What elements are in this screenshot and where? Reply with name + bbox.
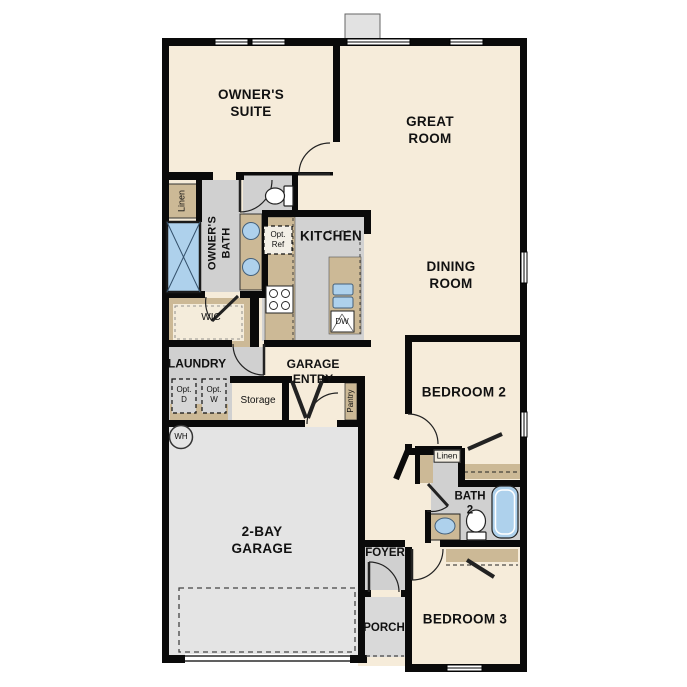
owners-bath-label: OWNER'SBATH [206, 216, 234, 270]
linen-hall-label: Linen [434, 450, 461, 463]
garage-entry-label: GARAGEENTRY [287, 357, 340, 387]
garage-door-opening [185, 654, 350, 664]
opt-ref-label: Opt.Ref [270, 230, 285, 250]
chimney [345, 14, 380, 41]
bedroom2-label: BEDROOM 2 [422, 385, 506, 402]
linen-owners-label: Linen [176, 190, 187, 212]
window [447, 665, 482, 671]
bath2-sink [435, 518, 455, 534]
bedroom3-label: BEDROOM 3 [423, 612, 507, 629]
window [215, 39, 248, 45]
dishwasher-label: DW [335, 317, 348, 327]
vanity-sink-1 [243, 223, 260, 240]
water-heater-label: WH [174, 432, 187, 442]
window [450, 39, 483, 45]
bath2-label: BATH2 [454, 490, 485, 519]
window [347, 39, 410, 45]
window [521, 412, 527, 437]
garage-label: 2-BAYGARAGE [231, 524, 292, 558]
kitchen-label: KITCHEN [300, 229, 362, 246]
porch-label: PORCH [363, 621, 405, 635]
foyer-label: FOYER [365, 546, 405, 560]
wic-label: WIC [201, 312, 220, 325]
great-room-label: GREATROOM [406, 114, 454, 148]
shower [167, 222, 200, 292]
bedroom3-closet-shelf [446, 549, 518, 562]
window [521, 252, 527, 283]
owners-suite-label: OWNER'SSUITE [218, 87, 284, 121]
opt-washer-label: Opt.W [206, 385, 221, 405]
opt-dryer-label: Opt.D [176, 385, 191, 405]
bathtub [492, 486, 518, 538]
floor-plan-drawing [0, 0, 687, 687]
dining-room-label: DININGROOM [426, 259, 475, 293]
owners-toilet [266, 186, 294, 206]
window [252, 39, 285, 45]
storage-label: Storage [240, 395, 275, 408]
vanity-sink-2 [243, 259, 260, 276]
range [266, 286, 293, 313]
laundry-label: LAUNDRY [168, 357, 226, 372]
pantry-label: Pantry [346, 389, 356, 412]
floor-plan: OWNER'SSUITE GREATROOM DININGROOM KITCHE… [0, 0, 687, 687]
linen-shelf-hall [420, 452, 433, 483]
